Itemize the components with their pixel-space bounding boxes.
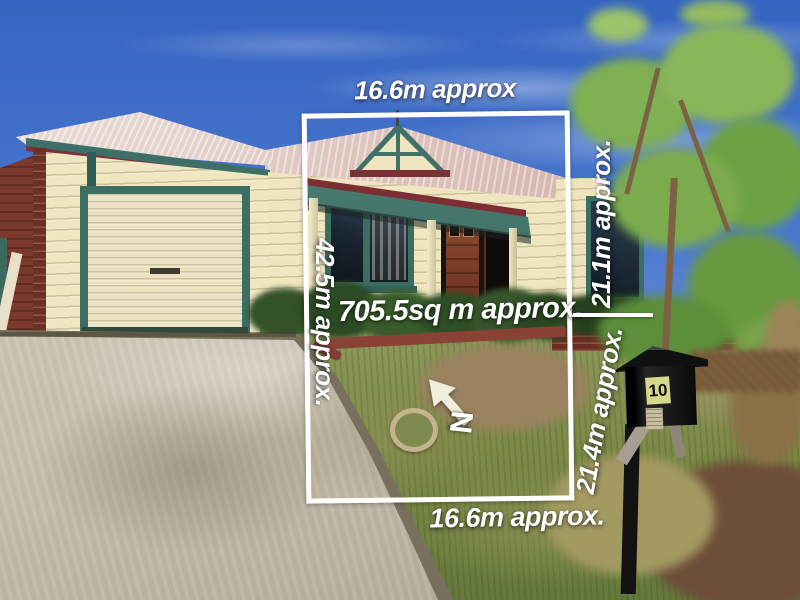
letterbox-number-plate: 10 [645,376,671,405]
bottom-width-label: 16.6m approx. [427,500,608,534]
left-depth-label: 42.5m approx. [309,238,340,438]
top-width-label: 16.6m approx [300,72,570,108]
driveway-top-shadow [0,332,296,337]
area-label: 705.5sq m approx. [338,292,579,329]
letterbox-small-sign [646,408,664,431]
garage-door-handle [150,268,180,274]
right-depth-upper-label: 21.1m approx. [586,158,617,308]
tree-foliage [588,8,648,42]
brick-pillar [33,148,47,340]
lattice-fence [688,350,800,392]
house-number: 10 [648,380,668,401]
garage-door [88,194,242,327]
north-letter-label: N [442,409,480,435]
property-photo: 10 16.6m approx 42.5m approx. 705.5sq m … [0,0,800,600]
dimension-tick-line [573,313,653,317]
